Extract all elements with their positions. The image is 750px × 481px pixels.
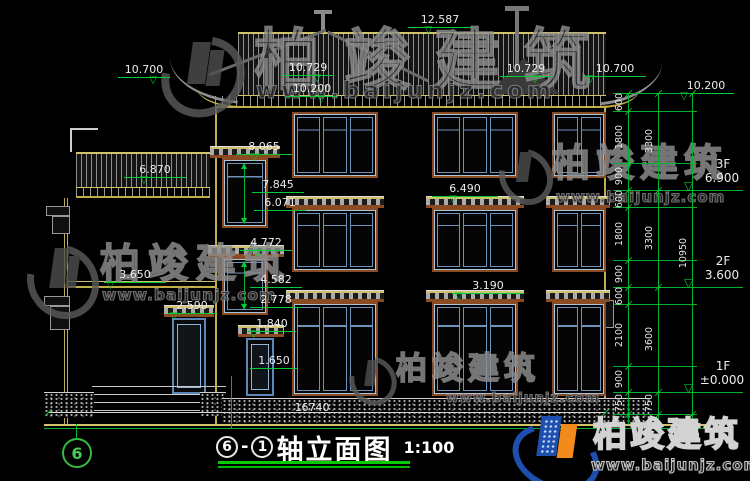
watermark-top: 柏竣建筑 www.baijunjz.com [160, 28, 640, 108]
dim-inner-7: 2100 [614, 313, 626, 357]
floor-2f-mark [684, 278, 693, 288]
dim-middle-2: 3600 [644, 317, 656, 361]
window-2f-left [292, 208, 378, 272]
porch-door [172, 318, 206, 394]
level-stair2-head: 4.582 [250, 274, 302, 288]
axis-leader-line [76, 424, 77, 438]
dim-inner-1: 1800 [614, 115, 626, 159]
window-3f-left [292, 112, 378, 178]
watermark-url: www.baijunjz.com [556, 190, 725, 205]
dim-chain-outer-line [692, 93, 693, 424]
left-parapet [70, 128, 98, 152]
dim-rule-floor [613, 392, 743, 393]
level-stair3-top: 8.065 [236, 141, 292, 155]
level-eave-left-low: 10.200 [286, 83, 338, 97]
level-eave-right-low: 10.200 [678, 80, 734, 94]
dim-chain-middle-line [658, 93, 659, 424]
title-axis-left-bubble: 6 [216, 436, 238, 458]
left-corbel-upper [46, 206, 70, 216]
drawing-title: 6 - 1 轴立面图 1:100 [216, 433, 486, 461]
stair-upper-dim-line [244, 168, 245, 220]
level-eave-right-outer: 10.700 [584, 63, 646, 77]
dim-middle-1: 3300 [644, 216, 656, 260]
level-left-roof: 6.870 [124, 164, 186, 178]
steps-axis-line [231, 376, 232, 428]
floor-3f-name: 3F [700, 158, 746, 171]
brand-url: www.baijunjz.com [591, 458, 750, 473]
title-underline-bottom [218, 466, 410, 468]
dim-arrow-down [241, 218, 247, 224]
watermark-url: www.baijunjz.com [446, 392, 600, 406]
dim-arrow-up [241, 163, 247, 169]
dim-inner-6: 600 [614, 274, 626, 318]
level-door-head: 1.840 [248, 318, 296, 332]
title-axis-right-bubble: 1 [251, 436, 273, 458]
cad-elevation-canvas: 柏竣建筑 www.baijunjz.com 柏竣建筑 www.baijunjz.… [0, 0, 750, 481]
floor-3f-level: 6.900 [694, 172, 750, 185]
dim-rule-floor [613, 287, 743, 288]
brand-name: 柏竣建筑 [593, 418, 741, 452]
level-stair2-sill: 2.778 [250, 294, 302, 308]
floor-2f-level: 3.600 [694, 269, 750, 282]
dim-middle-0: 3300 [644, 119, 656, 163]
title-scale: 1:100 [403, 438, 454, 457]
dim-rule-floor [613, 190, 743, 191]
level-eave-left-inner: 10.729 [282, 62, 334, 76]
title-underline-top [218, 461, 410, 464]
level-ridge: 12.587 [408, 14, 472, 28]
floor-2f-name: 2F [700, 255, 746, 268]
ledge-1f-right [546, 290, 610, 302]
level-eave-right-inner: 10.729 [500, 63, 552, 77]
left-roof-fascia [76, 188, 210, 198]
level-left-floor: 3.650 [104, 269, 166, 283]
level-stair2-top: 4.772 [240, 237, 292, 251]
floor-1f-level: ±0.000 [694, 374, 750, 387]
level-stair3-head: 7.845 [252, 179, 304, 193]
porch-door-panel [177, 324, 201, 388]
dim-total-height: 10950 [678, 231, 690, 275]
left-corbel-upper-step [52, 216, 70, 234]
ground-hatch-left [44, 392, 94, 418]
floor-3f-mark [684, 181, 693, 191]
floor-1f-name: 1F [700, 360, 746, 373]
dim-inner-4: 1800 [614, 212, 626, 256]
level-porch-head: 2.590 [168, 300, 216, 314]
floor-1f-mark [684, 383, 693, 393]
level-stair3-sill: 6.071 [254, 197, 306, 211]
level-door-sill: 1.650 [250, 355, 298, 369]
brand-logo: 柏竣建筑 www.baijunjz.com [505, 414, 750, 480]
title-dash: - [241, 438, 248, 456]
level-ledge-1f: 3.190 [452, 280, 524, 294]
level-eave-left-outer: 10.700 [118, 64, 170, 78]
watermark-brand: 柏竣建筑 [396, 354, 540, 385]
axis-bubble: 6 [62, 438, 92, 468]
level-ledge-3f: 6.490 [432, 183, 498, 197]
dim-total-width: 16740 [282, 401, 342, 414]
watermark-bottom: 柏竣建筑 www.baijunjz.com [350, 352, 630, 414]
